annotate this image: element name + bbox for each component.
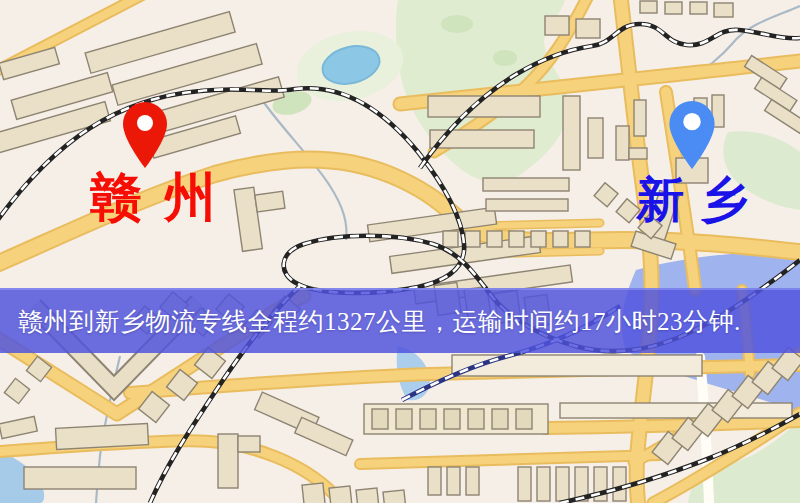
destination-pin-icon[interactable] (665, 99, 719, 171)
map-canvas (0, 0, 800, 503)
route-banner: 赣州到新乡物流专线全程约1327公里，运输时间约17小时23分钟. (0, 288, 800, 353)
origin-pin-icon[interactable] (119, 100, 171, 170)
destination-city-label: 新乡 (636, 176, 764, 224)
origin-city-label: 赣州 (90, 172, 238, 224)
map-screenshot: 赣州 新乡 赣州到新乡物流专线全程约1327公里，运输时间约17小时23分钟. (0, 0, 800, 503)
route-banner-text: 赣州到新乡物流专线全程约1327公里，运输时间约17小时23分钟. (0, 305, 741, 338)
